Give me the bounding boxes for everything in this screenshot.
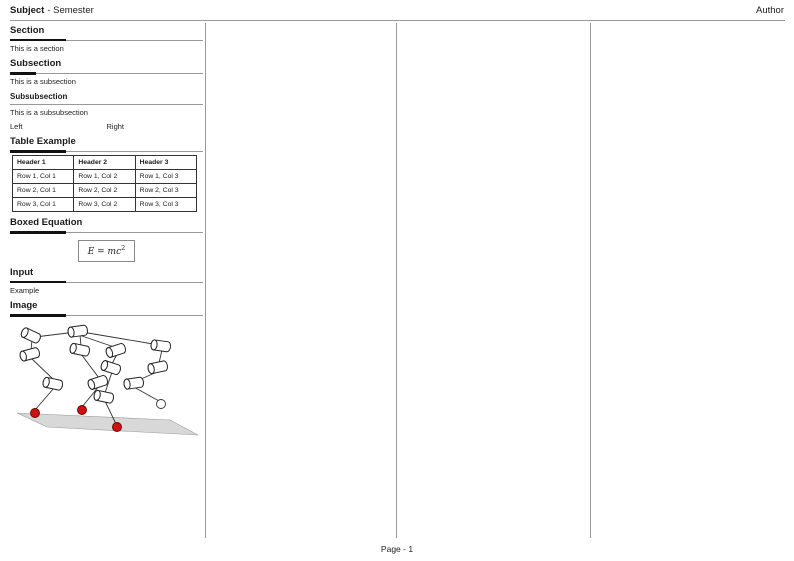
document-header: Subject- Semester Author bbox=[10, 5, 784, 16]
table-header-cell: Header 3 bbox=[135, 156, 196, 170]
subsubsection-rule bbox=[10, 102, 203, 105]
table-cell: Row 2, Col 2 bbox=[74, 184, 135, 198]
free-foot-marker bbox=[157, 400, 166, 409]
left-text: Left bbox=[10, 122, 107, 131]
column-separator-2 bbox=[396, 23, 397, 538]
boxed-equation-title: Boxed Equation bbox=[10, 218, 203, 229]
table-cell: Row 1, Col 2 bbox=[74, 170, 135, 184]
author-label: Author bbox=[756, 5, 784, 16]
table-header-cell: Header 2 bbox=[74, 156, 135, 170]
right-text: Right bbox=[107, 122, 204, 131]
boxed-equation-rule-accent bbox=[10, 231, 66, 234]
table-example-title: Table Example bbox=[10, 137, 203, 148]
figure-cylinders bbox=[19, 325, 171, 404]
equation-text: E = mc2 bbox=[88, 247, 126, 257]
subsubsection-title: Subsubsection bbox=[10, 92, 203, 101]
equation-superscript: 2 bbox=[121, 244, 125, 252]
section-rule-accent bbox=[10, 39, 66, 42]
column-separator-3 bbox=[590, 23, 591, 538]
contact-foot-marker bbox=[78, 406, 87, 415]
document-title: Subject- Semester bbox=[10, 5, 94, 16]
robot-linkage-figure-image bbox=[12, 320, 205, 442]
image-title: Image bbox=[10, 301, 203, 312]
table-example-rule bbox=[10, 149, 203, 152]
table-cell: Row 3, Col 1 bbox=[13, 198, 74, 212]
table-cell: Row 2, Col 1 bbox=[13, 184, 74, 198]
image-rule-accent bbox=[10, 314, 66, 317]
contact-foot-marker bbox=[113, 423, 122, 432]
page-number: Page - 1 bbox=[0, 544, 794, 554]
subsubsection-body-text: This is a subsubsection bbox=[10, 108, 203, 117]
input-rule bbox=[10, 280, 203, 283]
table-header-cell: Header 1 bbox=[13, 156, 74, 170]
subsection-rule-accent bbox=[10, 72, 36, 75]
table-cell: Row 3, Col 3 bbox=[135, 198, 196, 212]
section-rule bbox=[10, 38, 203, 41]
input-rule-accent bbox=[10, 281, 66, 284]
contact-foot-marker bbox=[31, 409, 40, 418]
content-column-1: Section This is a section Subsection Thi… bbox=[10, 23, 203, 442]
input-body-text: Example bbox=[10, 286, 203, 295]
table-cell: Row 3, Col 2 bbox=[74, 198, 135, 212]
equation-base: E = mc bbox=[88, 247, 121, 257]
semester-label: - Semester bbox=[47, 5, 93, 16]
table-row: Row 2, Col 1 Row 2, Col 2 Row 2, Col 3 bbox=[13, 184, 197, 198]
input-title: Input bbox=[10, 268, 203, 279]
table-example-rule-accent bbox=[10, 150, 66, 153]
table-row: Row 1, Col 1 Row 1, Col 2 Row 1, Col 3 bbox=[13, 170, 197, 184]
column-separator-1 bbox=[205, 23, 206, 538]
section-body-text: This is a section bbox=[10, 44, 203, 53]
subject-label: Subject bbox=[10, 5, 44, 16]
header-rule bbox=[10, 20, 785, 21]
table-cell: Row 1, Col 1 bbox=[13, 170, 74, 184]
subsection-body-text: This is a subsection bbox=[10, 77, 203, 86]
equation-box: E = mc2 bbox=[78, 240, 136, 262]
section-title: Section bbox=[10, 26, 203, 37]
two-column-text-row: Left Right bbox=[10, 122, 203, 131]
example-table: Header 1 Header 2 Header 3 Row 1, Col 1 … bbox=[12, 155, 197, 212]
table-header-row: Header 1 Header 2 Header 3 bbox=[13, 156, 197, 170]
subsection-title: Subsection bbox=[10, 59, 203, 70]
table-row: Row 3, Col 1 Row 3, Col 2 Row 3, Col 3 bbox=[13, 198, 197, 212]
document-page: Subject- Semester Author Section This is… bbox=[0, 0, 794, 561]
table-cell: Row 2, Col 3 bbox=[135, 184, 196, 198]
boxed-equation-rule bbox=[10, 230, 203, 233]
table-cell: Row 1, Col 3 bbox=[135, 170, 196, 184]
subsection-rule bbox=[10, 71, 203, 74]
image-rule bbox=[10, 313, 203, 316]
